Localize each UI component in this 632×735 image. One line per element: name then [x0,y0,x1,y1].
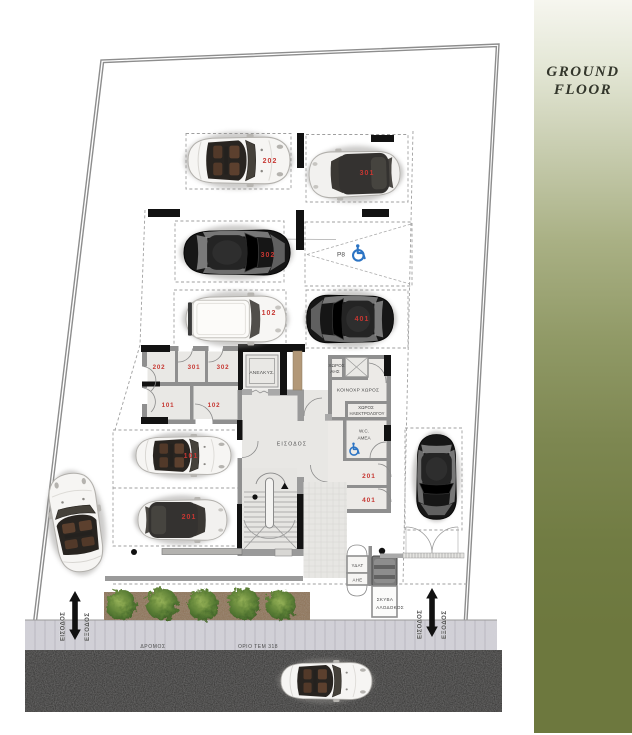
svg-text:201: 201 [182,514,197,521]
svg-text:ΕΙΣΟΔΟΣ: ΕΙΣΟΔΟΣ [417,610,424,639]
svg-text:ΧΩΡΟΣ: ΧΩΡΟΣ [328,363,344,368]
svg-text:ΑΗΣ: ΑΗΣ [330,369,340,374]
svg-text:101: 101 [162,402,175,409]
svg-text:ΑΝΕΛΚΥΣ.: ΑΝΕΛΚΥΣ. [249,370,274,376]
svg-text:ΣΚΥΒΑ: ΣΚΥΒΑ [377,597,394,602]
svg-text:202: 202 [153,364,166,371]
svg-text:ΕΙΣΟΔΟΣ: ΕΙΣΟΔΟΣ [277,442,307,448]
svg-text:302: 302 [261,252,276,259]
svg-text:302: 302 [217,364,230,371]
svg-text:ΑΗΕ: ΑΗΕ [353,578,363,583]
svg-text:401: 401 [355,316,370,323]
svg-text:ΕΙΣΟΔΟΣ: ΕΙΣΟΔΟΣ [60,612,67,641]
svg-text:ΑΜΕΑ: ΑΜΕΑ [357,436,371,441]
svg-text:ΧΩΡΟΣ: ΧΩΡΟΣ [358,405,374,410]
svg-text:401: 401 [362,497,376,504]
svg-text:P8: P8 [337,252,345,259]
svg-text:ΑΛΟΔΟΚΟΣ: ΑΛΟΔΟΚΟΣ [376,605,404,610]
svg-text:101: 101 [184,453,199,460]
svg-text:ΥΔΑΤ: ΥΔΑΤ [351,563,363,568]
svg-text:202: 202 [263,158,278,165]
svg-text:ΚΟΙΝΟΧΡ ΧΩΡΟΣ: ΚΟΙΝΟΧΡ ΧΩΡΟΣ [337,388,379,394]
svg-text:301: 301 [188,364,201,371]
svg-text:W.C.: W.C. [359,429,369,434]
svg-text:102: 102 [262,310,277,317]
svg-text:102: 102 [208,402,221,409]
svg-text:ΗΛΕΚΤΡΟΛΟΓΟΥ: ΗΛΕΚΤΡΟΛΟΓΟΥ [349,411,384,416]
svg-text:301: 301 [360,170,375,177]
svg-text:201: 201 [362,473,376,480]
svg-text:ΟΡΙΟ ΤΕΜ 318: ΟΡΙΟ ΤΕΜ 318 [238,644,278,650]
svg-text:ΕΞΟΔΟΣ: ΕΞΟΔΟΣ [441,610,448,639]
svg-text:ΔΡΟΜΟΣ: ΔΡΟΜΟΣ [140,644,165,650]
svg-text:ΕΞΟΔΟΣ: ΕΞΟΔΟΣ [84,612,91,641]
